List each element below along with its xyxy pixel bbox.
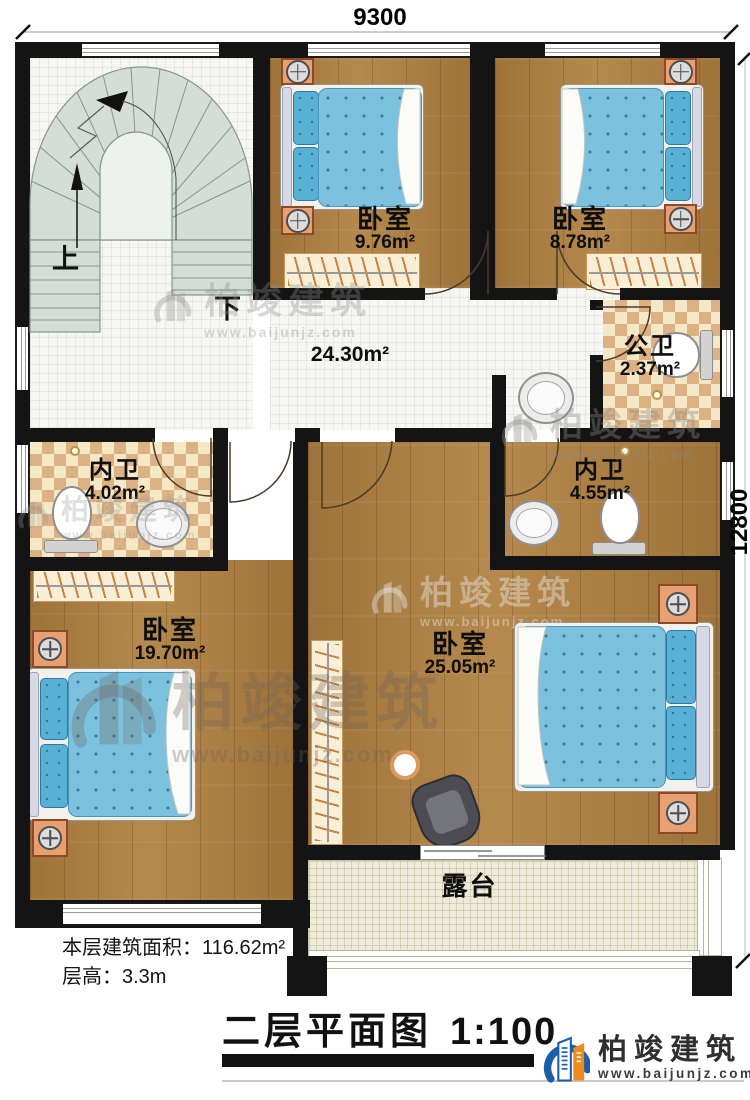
terrace-pillar [287,956,327,996]
wall [545,845,720,860]
bed-headboard [282,87,292,207]
lamp-icon [286,209,310,233]
dimension-top: 9300 [340,4,420,32]
lamp-icon [666,592,690,616]
title-underline-bar [222,1054,534,1067]
wall [30,428,155,442]
brand-logo: 柏竣建筑 www.baijunjz.com [540,1030,750,1086]
pillow [666,630,696,704]
wall [490,556,720,570]
light-fixture-icon [620,446,630,456]
wall [293,442,308,900]
wardrobe [311,640,343,845]
plan-title: 二层平面图1:100 [222,1000,557,1055]
mattress [562,88,664,207]
brand-logo-icon [540,1030,590,1086]
nightstand [281,206,314,235]
window [82,42,219,58]
pillow [665,147,691,201]
pillow [40,678,68,740]
window [15,327,30,390]
nightstand [664,58,697,85]
nightstand [664,204,697,234]
room-label-bedroom1: 卧室 9.76m² [320,205,450,254]
room-label-public-bath: 公卫 2.37m² [600,334,700,380]
wall [213,428,228,571]
plan-info: 本层建筑面积：116.62m² 层高：3.3m [62,934,285,992]
lamp-icon [38,637,62,661]
wall [470,58,495,300]
wall [295,428,320,442]
room-label-terrace: 露台 [412,872,527,900]
bed-headboard [696,626,710,788]
nightstand [281,58,314,85]
wall [490,428,505,442]
room-label-hall: 24.30m² [285,344,415,367]
lamp-icon [286,60,310,84]
plan-title-text: 二层平面图 [222,1011,432,1053]
terrace-railing-right [697,858,722,956]
wall [495,288,557,300]
side-table [390,750,420,780]
wall [253,288,425,300]
closet [586,253,702,290]
mattress [68,672,192,817]
wall [395,428,490,442]
room-label-bedroom3: 卧室 19.70m² [105,616,235,665]
sink [518,372,574,424]
room-label-ensuite-left: 内卫 4.02m² [60,458,170,504]
brand-name: 柏竣建筑 [598,1035,750,1065]
sliding-door [420,845,545,860]
wall [560,428,720,442]
window [308,42,470,58]
nightstand [32,630,68,668]
pillow [293,91,319,145]
floor-plan: 上 下 9300 [0,0,750,1100]
wall [720,42,735,850]
terrace-pillar [692,956,732,996]
toilet-tank [700,330,713,380]
dimension-right: 12800 [726,472,750,572]
window [15,445,30,513]
stair-hall-floor [30,58,253,430]
window [63,902,261,926]
mattress [518,626,666,788]
closet [284,253,420,290]
room-label-bedroom2: 卧室 8.78m² [515,205,645,254]
nightstand [32,819,68,857]
nightstand [658,584,698,624]
nightstand [658,792,698,834]
sink [508,500,560,546]
window [545,42,660,58]
wall [30,557,228,571]
lamp-icon [669,60,693,84]
wall [253,58,270,300]
toilet-tank [44,540,98,553]
bed-headboard [692,87,702,207]
room-label-bedroom4: 卧室 25.05m² [395,630,525,679]
light-fixture-icon [70,446,80,456]
mattress [318,88,422,207]
terrace-railing-bottom [308,950,700,969]
pillow [40,744,68,808]
wall [590,300,603,310]
brand-url: www.baijunjz.com [598,1066,750,1081]
pillow [665,91,691,145]
floor-area-row: 本层建筑面积：116.62m² [62,934,285,963]
lamp-icon [669,207,693,231]
wall [490,442,505,556]
sink [136,500,190,548]
floor-height-row: 层高：3.3m [62,963,285,992]
wall [492,375,506,428]
lamp-icon [666,801,690,825]
bed-headboard [29,672,39,817]
window [720,330,735,397]
light-fixture-icon [652,390,662,400]
pillow [666,706,696,780]
wall [620,288,720,300]
closet [33,568,175,602]
room-label-ensuite-right: 内卫 4.55m² [545,458,655,504]
wall [308,845,420,860]
pillow [293,147,319,201]
lamp-icon [38,826,62,850]
